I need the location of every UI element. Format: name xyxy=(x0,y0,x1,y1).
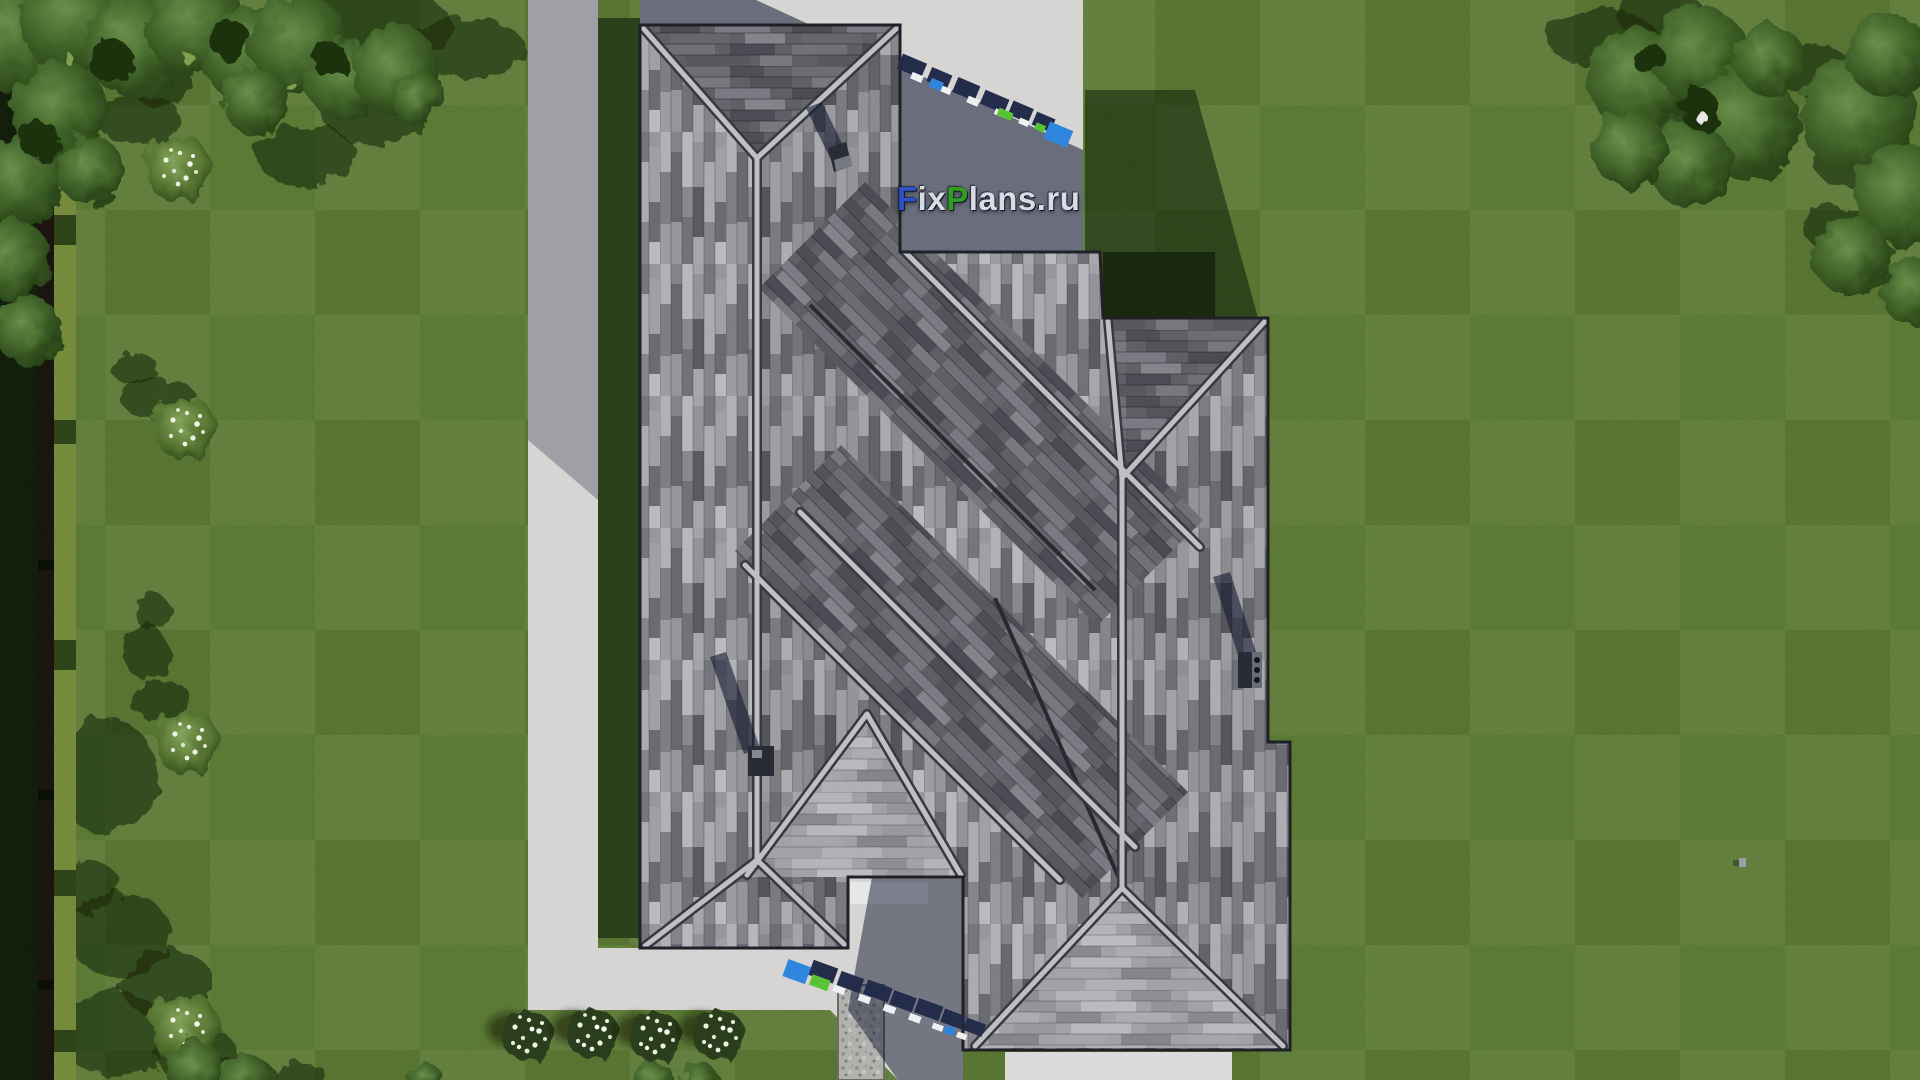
logo-seg-p: P xyxy=(946,180,969,218)
logo-seg-ix: ix xyxy=(918,180,947,218)
white-speck xyxy=(1696,112,1708,124)
fixplans-logo: FixPlans.ru xyxy=(897,180,1080,218)
scene-render xyxy=(0,0,1920,1080)
logo-seg-ru: .ru xyxy=(1037,180,1081,218)
logo-seg-lans: lans xyxy=(969,180,1037,218)
shaded-hedge-strip xyxy=(598,18,640,938)
logo-seg-f: F xyxy=(897,180,918,218)
aerial-house-render: FixPlans.ru xyxy=(0,0,1920,1080)
shaded-hedge-block xyxy=(1103,252,1215,318)
